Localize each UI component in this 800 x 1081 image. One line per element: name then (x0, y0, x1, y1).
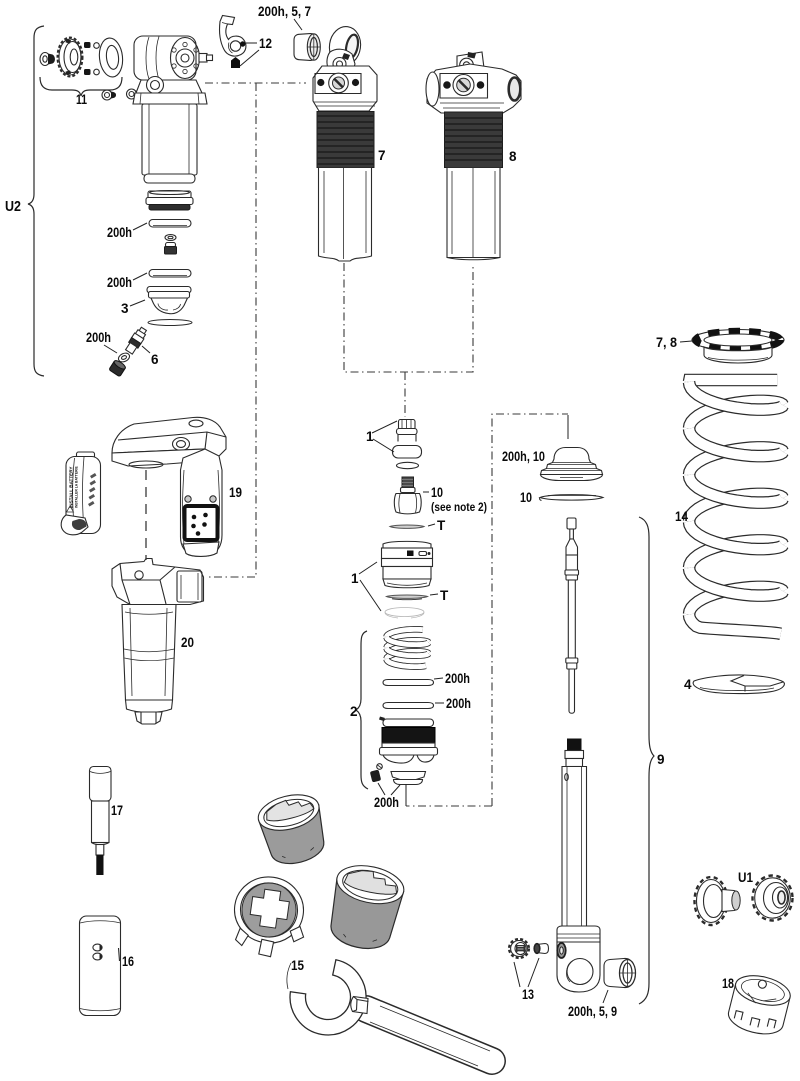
svg-text:INSTALLER LA BATTERIE: INSTALLER LA BATTERIE (75, 466, 79, 508)
svg-text:13: 13 (522, 987, 534, 1002)
svg-text:10: 10 (520, 490, 532, 505)
svg-text:12: 12 (259, 36, 272, 51)
svg-text:200h, 5, 7: 200h, 5, 7 (258, 4, 311, 19)
svg-text:200h, 5, 9: 200h, 5, 9 (568, 1004, 617, 1019)
svg-text:200h: 200h (445, 671, 470, 686)
svg-text:6: 6 (151, 352, 159, 367)
svg-text:19: 19 (229, 485, 242, 500)
svg-text:16: 16 (122, 954, 134, 969)
svg-text:T: T (437, 518, 446, 533)
svg-text:9: 9 (657, 752, 665, 767)
svg-text:3: 3 (121, 301, 129, 316)
svg-text:200h: 200h (446, 696, 471, 711)
svg-text:INSTALL BATTERY: INSTALL BATTERY (69, 467, 74, 508)
svg-text:U1: U1 (738, 870, 753, 885)
svg-text:200h: 200h (107, 275, 132, 290)
svg-text:T: T (440, 588, 449, 603)
svg-text:7, 8: 7, 8 (656, 335, 677, 350)
svg-text:200h: 200h (86, 330, 111, 345)
svg-text:200h: 200h (374, 795, 399, 810)
svg-text:20: 20 (181, 635, 194, 650)
svg-text:8: 8 (509, 149, 517, 164)
svg-text:14: 14 (675, 509, 688, 524)
svg-text:4: 4 (684, 677, 692, 692)
svg-text:1: 1 (351, 571, 359, 586)
svg-text:18: 18 (722, 976, 734, 991)
svg-text:10: 10 (431, 485, 443, 500)
svg-text:200h: 200h (107, 225, 132, 240)
svg-text:11: 11 (76, 92, 87, 107)
svg-text:2: 2 (350, 704, 358, 719)
svg-text:17: 17 (111, 803, 123, 818)
svg-text:(see note 2): (see note 2) (431, 500, 487, 514)
svg-text:U2: U2 (5, 198, 21, 215)
svg-text:200h, 10: 200h, 10 (502, 449, 545, 464)
svg-text:15: 15 (291, 958, 304, 973)
svg-text:7: 7 (378, 148, 386, 163)
svg-text:1: 1 (366, 429, 374, 444)
